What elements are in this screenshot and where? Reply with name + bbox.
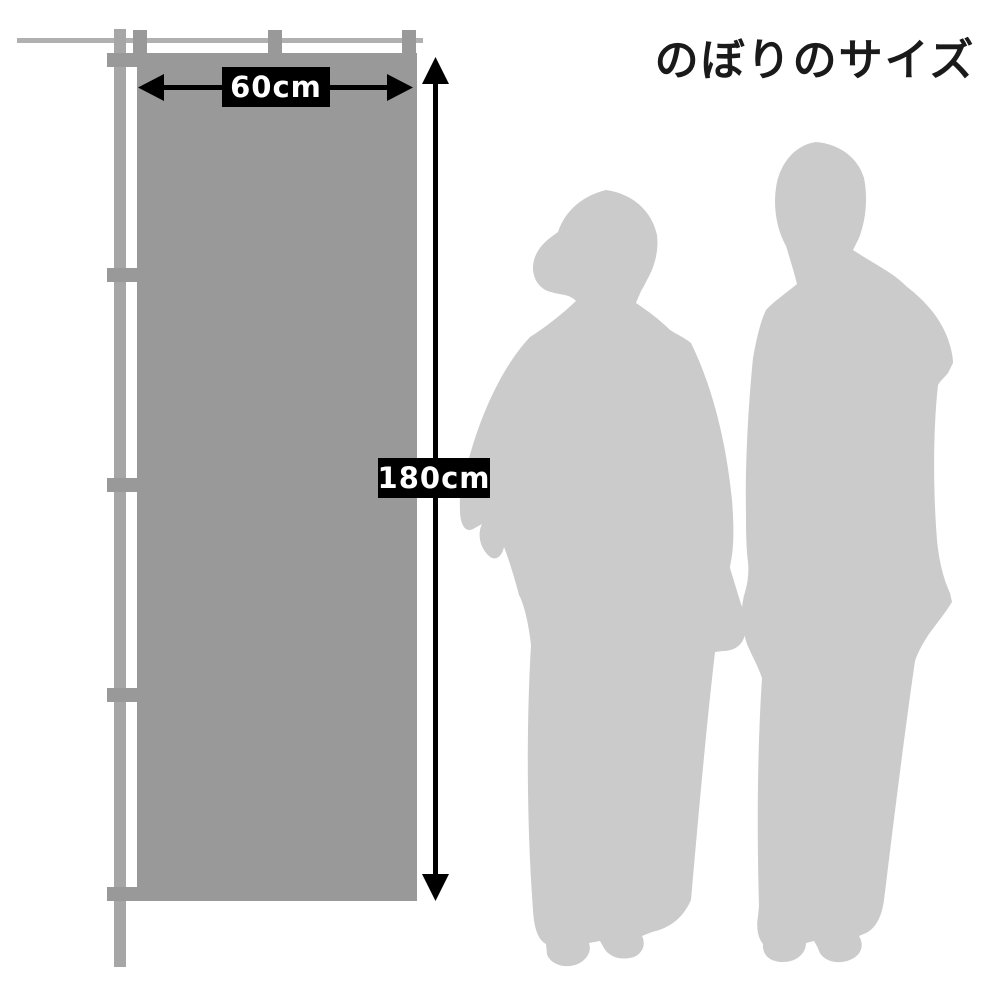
side-loop-1 — [107, 53, 137, 67]
side-loop-3 — [107, 478, 137, 492]
page-title: のぼりのサイズ — [650, 24, 980, 88]
top-loop-center — [268, 30, 282, 55]
nobori-size-diagram: 60cm 180cm のぼりのサイズ — [0, 0, 1000, 1000]
nobori-banner — [137, 53, 417, 901]
man-silhouette — [742, 142, 953, 962]
height-label: 180cm — [378, 458, 490, 498]
side-loop-4 — [107, 688, 137, 702]
side-loop-2 — [107, 268, 137, 282]
width-label: 60cm — [222, 67, 330, 107]
top-loop-left — [133, 30, 147, 55]
vertical-pole — [114, 29, 126, 967]
woman-silhouette — [460, 190, 746, 966]
couple-silhouette — [460, 142, 953, 966]
top-loop-right — [402, 30, 416, 55]
side-loop-5 — [107, 887, 137, 901]
horizontal-rod — [17, 38, 423, 43]
diagram-canvas — [0, 0, 1000, 1000]
